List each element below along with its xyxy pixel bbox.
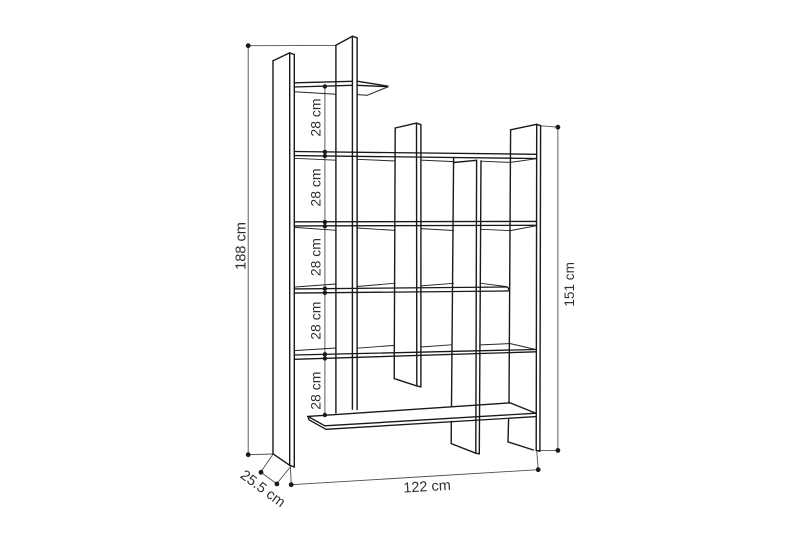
svg-text:28 cm: 28 cm [308, 168, 324, 206]
svg-text:28 cm: 28 cm [308, 302, 324, 340]
svg-text:28 cm: 28 cm [308, 238, 324, 276]
svg-text:28 cm: 28 cm [308, 98, 324, 136]
svg-text:122 cm: 122 cm [403, 478, 451, 497]
svg-text:188 cm: 188 cm [234, 222, 250, 270]
svg-text:28 cm: 28 cm [308, 372, 324, 410]
svg-text:151 cm: 151 cm [562, 262, 577, 307]
